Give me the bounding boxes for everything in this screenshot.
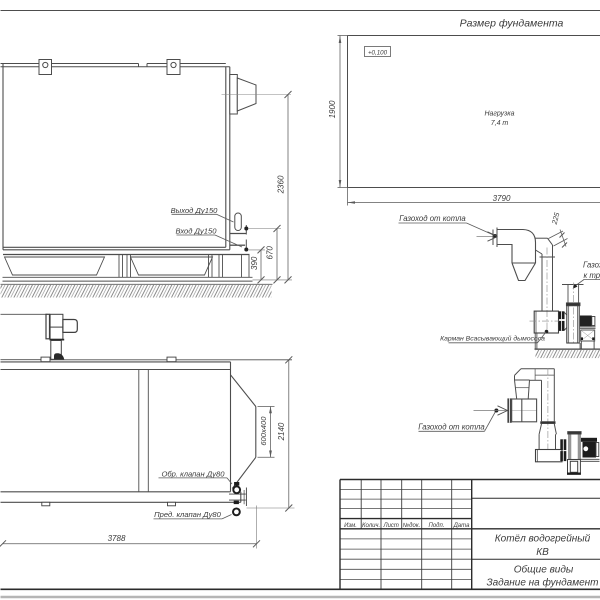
svg-text:2360: 2360 xyxy=(276,175,285,194)
svg-text:Размер фундамента: Размер фундамента xyxy=(460,18,564,30)
svg-text:600х400: 600х400 xyxy=(259,416,268,446)
svg-text:Лист: Лист xyxy=(382,523,398,529)
svg-text:Выход Ду150: Выход Ду150 xyxy=(171,206,219,215)
svg-text:1900: 1900 xyxy=(328,100,337,118)
svg-text:Газоход от котла: Газоход от котла xyxy=(418,423,485,432)
svg-text:Вход Ду150: Вход Ду150 xyxy=(176,227,218,236)
svg-text:3788: 3788 xyxy=(108,534,126,543)
svg-text:Нагрузка: Нагрузка xyxy=(484,111,514,118)
svg-text:Дата: Дата xyxy=(453,523,470,529)
svg-text:Общие виды: Общие виды xyxy=(514,563,574,575)
svg-text:+0,100: +0,100 xyxy=(368,50,388,57)
svg-text:Подп.: Подп. xyxy=(429,523,445,529)
svg-text:№док.: №док. xyxy=(403,522,421,529)
svg-text:Пред. клапан Ду80: Пред. клапан Ду80 xyxy=(154,510,221,519)
svg-text:Газоход от котла: Газоход от котла xyxy=(399,214,466,223)
svg-text:390: 390 xyxy=(250,256,259,270)
svg-text:Обр. клапан Ду80: Обр. клапан Ду80 xyxy=(162,470,226,479)
svg-text:2140: 2140 xyxy=(277,422,286,441)
svg-text:КВ: КВ xyxy=(536,547,549,558)
svg-text:225: 225 xyxy=(549,210,561,226)
svg-text:3790: 3790 xyxy=(493,194,511,203)
svg-text:Колич.: Колич. xyxy=(362,523,380,529)
svg-text:Изм.: Изм. xyxy=(344,523,357,529)
svg-text:Задание на фундамент: Задание на фундамент xyxy=(486,577,598,589)
svg-text:670: 670 xyxy=(265,246,274,260)
svg-text:7,4 т: 7,4 т xyxy=(491,120,509,127)
svg-text:Котёл водогрейный: Котёл водогрейный xyxy=(495,534,591,545)
svg-text:к трубе: к трубе xyxy=(584,271,600,280)
svg-text:Газоход: Газоход xyxy=(583,261,600,270)
svg-text:Карман Всасывающий дымососа: Карман Всасывающий дымососа xyxy=(440,335,545,343)
